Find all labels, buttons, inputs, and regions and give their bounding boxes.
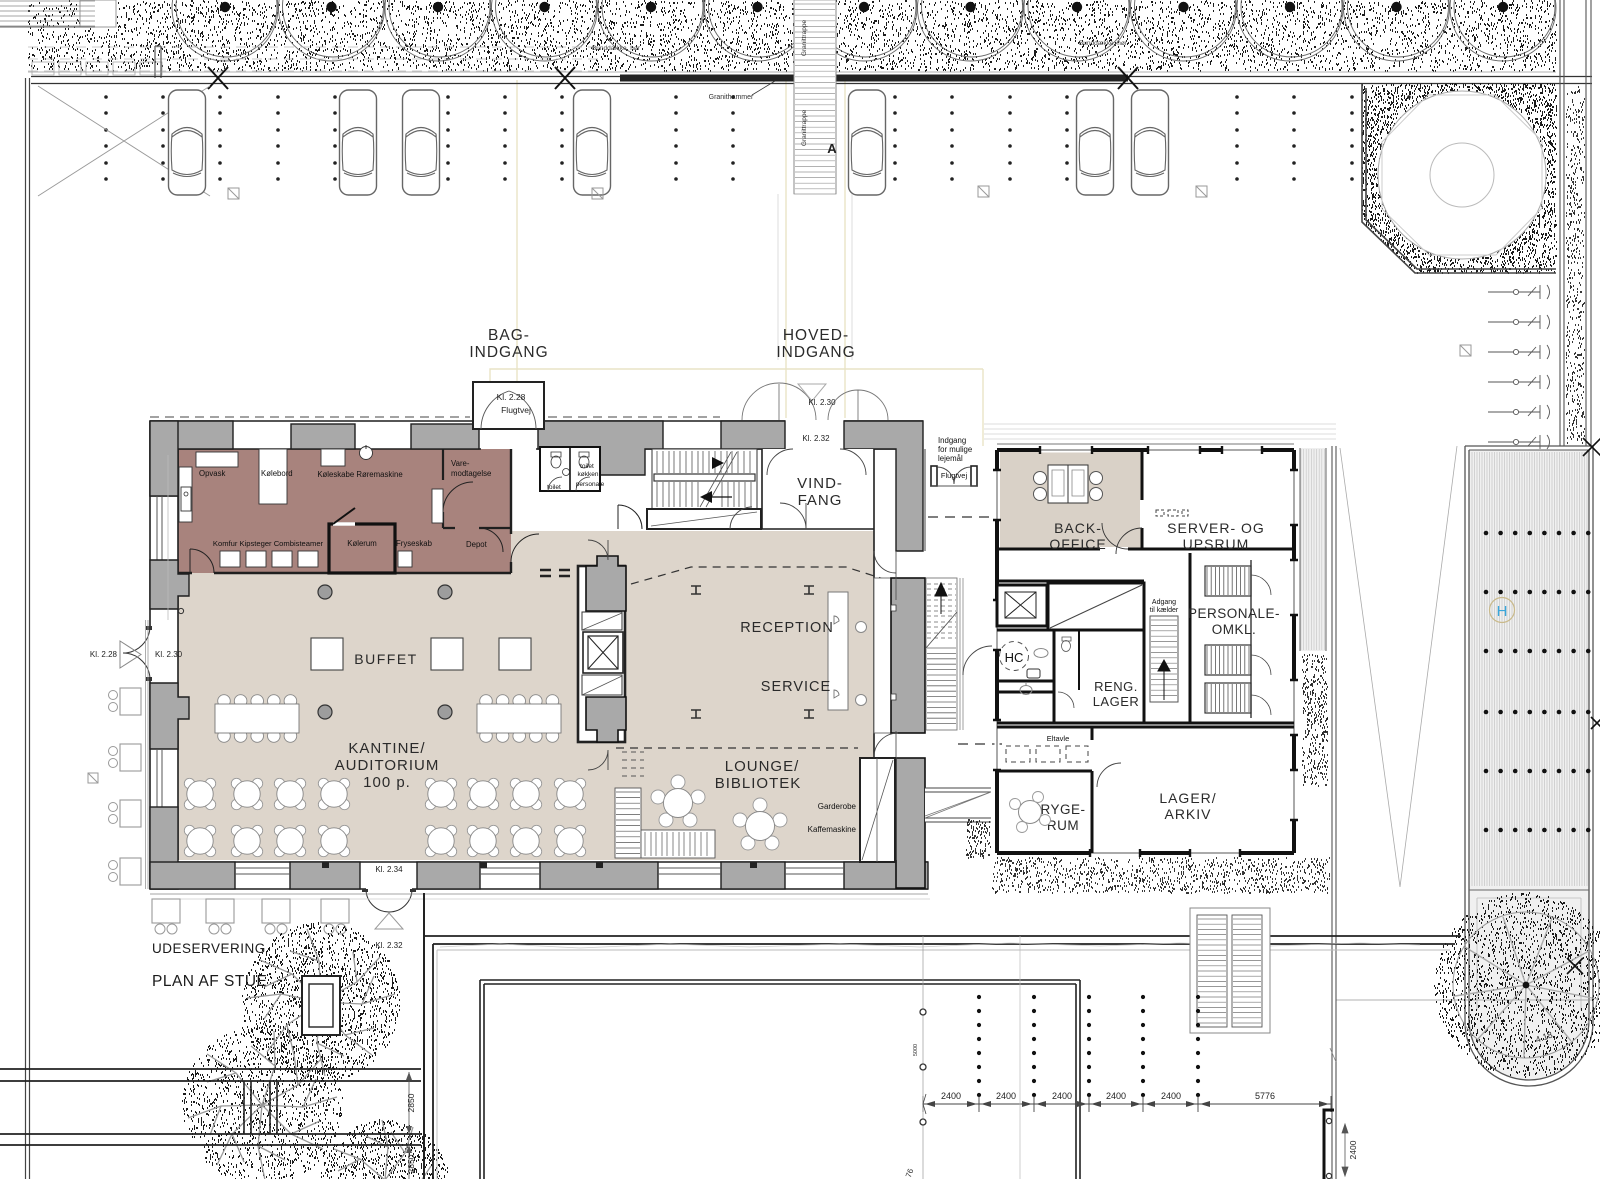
svg-text:Depot: Depot [466, 540, 488, 549]
svg-text:2400: 2400 [941, 1091, 961, 1101]
svg-text:Granittrappe: Granittrappe [801, 110, 808, 147]
svg-text:modtagelse: modtagelse [451, 469, 491, 478]
svg-text:HOVED-: HOVED- [783, 327, 849, 344]
svg-text:Kølerum: Kølerum [347, 539, 376, 548]
svg-text:FANG: FANG [798, 492, 843, 509]
svg-text:Kl. 2.32: Kl. 2.32 [802, 434, 830, 443]
svg-text:LAGER: LAGER [1093, 694, 1140, 709]
svg-text:Granittrappe: Granittrappe [801, 20, 808, 57]
svg-text:HC: HC [1005, 650, 1024, 665]
svg-text:5776: 5776 [1255, 1091, 1275, 1101]
svg-text:2400: 2400 [1348, 1140, 1358, 1159]
svg-text:BACK-: BACK- [1054, 520, 1102, 536]
svg-text:A: A [827, 141, 837, 156]
svg-text:OMKL.: OMKL. [1212, 622, 1257, 637]
svg-text:Kl. 2.28: Kl. 2.28 [90, 650, 118, 659]
svg-text:5000: 5000 [913, 1044, 919, 1056]
svg-text:Indgang: Indgang [938, 436, 966, 445]
svg-text:Komfur Kipsteger Combisteamer: Komfur Kipsteger Combisteamer [213, 539, 324, 548]
svg-text:2400: 2400 [996, 1091, 1016, 1101]
svg-text:VIND-: VIND- [797, 475, 843, 492]
svg-text:køkken: køkken [578, 471, 599, 478]
svg-text:2400: 2400 [1052, 1091, 1072, 1101]
svg-text:SERVICE: SERVICE [761, 679, 831, 695]
svg-text:RECEPTION: RECEPTION [740, 620, 834, 636]
svg-text:toilet: toilet [547, 484, 561, 491]
svg-text:Bunddække, hør: Bunddække, hør [592, 45, 641, 52]
svg-text:Eltavle: Eltavle [1047, 734, 1070, 743]
svg-text:OFFICE: OFFICE [1049, 536, 1106, 552]
svg-text:Flugtvej: Flugtvej [941, 471, 968, 480]
svg-text:UPSRUM: UPSRUM [1183, 536, 1250, 552]
svg-text:H: H [1497, 603, 1508, 620]
svg-text:PERSONALE-: PERSONALE- [1188, 606, 1280, 621]
svg-text:AUDITORIUM: AUDITORIUM [335, 757, 440, 774]
svg-text:INDGANG: INDGANG [469, 344, 548, 361]
svg-text:2850: 2850 [406, 1154, 416, 1173]
svg-text:Kaffemaskine: Kaffemaskine [808, 825, 857, 834]
svg-text:Køleskabe Røremaskine: Køleskabe Røremaskine [317, 470, 402, 479]
svg-text:2400: 2400 [1161, 1091, 1181, 1101]
svg-text:LOUNGE/: LOUNGE/ [725, 758, 800, 775]
svg-text:for mulige: for mulige [938, 445, 972, 454]
svg-text:100 p.: 100 p. [363, 774, 411, 791]
svg-text:Kl. 2.30: Kl. 2.30 [155, 650, 183, 659]
svg-text:INDGANG: INDGANG [776, 344, 855, 361]
svg-text:Vare-: Vare- [451, 459, 470, 468]
svg-text:toilet: toilet [580, 463, 594, 470]
svg-text:Fryseskab: Fryseskab [396, 539, 433, 548]
svg-text:RUM: RUM [1047, 818, 1079, 833]
svg-text:BAG-: BAG- [488, 327, 530, 344]
svg-text:UDESERVERING: UDESERVERING [152, 941, 266, 956]
svg-text:LAGER/: LAGER/ [1159, 790, 1216, 806]
svg-text:Kl. 2.32: Kl. 2.32 [375, 941, 403, 950]
svg-text:ARKIV: ARKIV [1164, 806, 1211, 822]
svg-text:BIBLIOTEK: BIBLIOTEK [715, 775, 802, 792]
svg-text:Opvask: Opvask [199, 469, 226, 478]
svg-text:Kølebord: Kølebord [261, 469, 293, 478]
svg-text:Kl. 2.30: Kl. 2.30 [808, 398, 836, 407]
svg-text:KANTINE/: KANTINE/ [348, 740, 425, 757]
svg-text:til kælder: til kælder [1150, 607, 1179, 614]
svg-text:PLAN AF STUE: PLAN AF STUE [152, 973, 267, 990]
svg-text:Adgang: Adgang [1152, 599, 1176, 606]
svg-text:personale: personale [576, 481, 605, 488]
svg-text:BUFFET: BUFFET [354, 651, 417, 667]
svg-text:Flugtvej: Flugtvej [501, 405, 531, 415]
svg-text:SERVER- OG: SERVER- OG [1167, 520, 1265, 536]
svg-text:RENG.: RENG. [1094, 679, 1138, 694]
svg-text:Kl. 2.28: Kl. 2.28 [497, 392, 526, 402]
svg-text:Kl. 2.34: Kl. 2.34 [375, 865, 403, 874]
svg-text:2400: 2400 [1106, 1091, 1126, 1101]
svg-text:Bunddække, hør: Bunddække, hør [1079, 40, 1128, 47]
svg-text:2850: 2850 [406, 1093, 416, 1112]
svg-text:Garderobe: Garderobe [818, 802, 857, 811]
svg-text:lejemål: lejemål [938, 454, 963, 463]
